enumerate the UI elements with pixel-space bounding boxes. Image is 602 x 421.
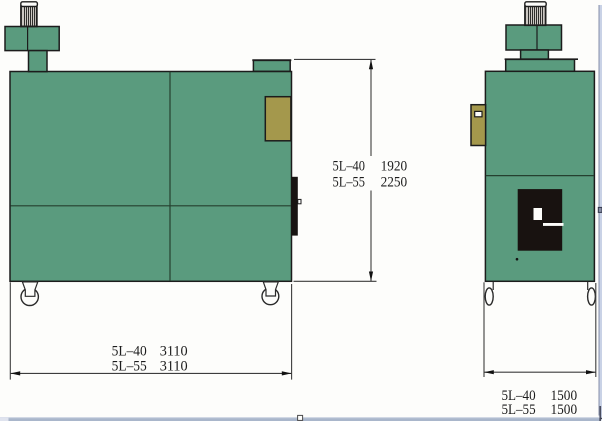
- svg-text:5L–55: 5L–55: [502, 402, 536, 418]
- svg-text:5L–55: 5L–55: [333, 174, 366, 190]
- svg-text:1920: 1920: [381, 159, 408, 175]
- svg-text:1500: 1500: [551, 402, 578, 418]
- svg-text:2250: 2250: [381, 174, 408, 190]
- svg-text:5L–55: 5L–55: [112, 359, 147, 375]
- svg-text:5L–40: 5L–40: [112, 343, 147, 359]
- svg-text:3110: 3110: [160, 359, 188, 375]
- svg-text:5L–40: 5L–40: [333, 159, 366, 175]
- svg-text:3110: 3110: [160, 343, 188, 359]
